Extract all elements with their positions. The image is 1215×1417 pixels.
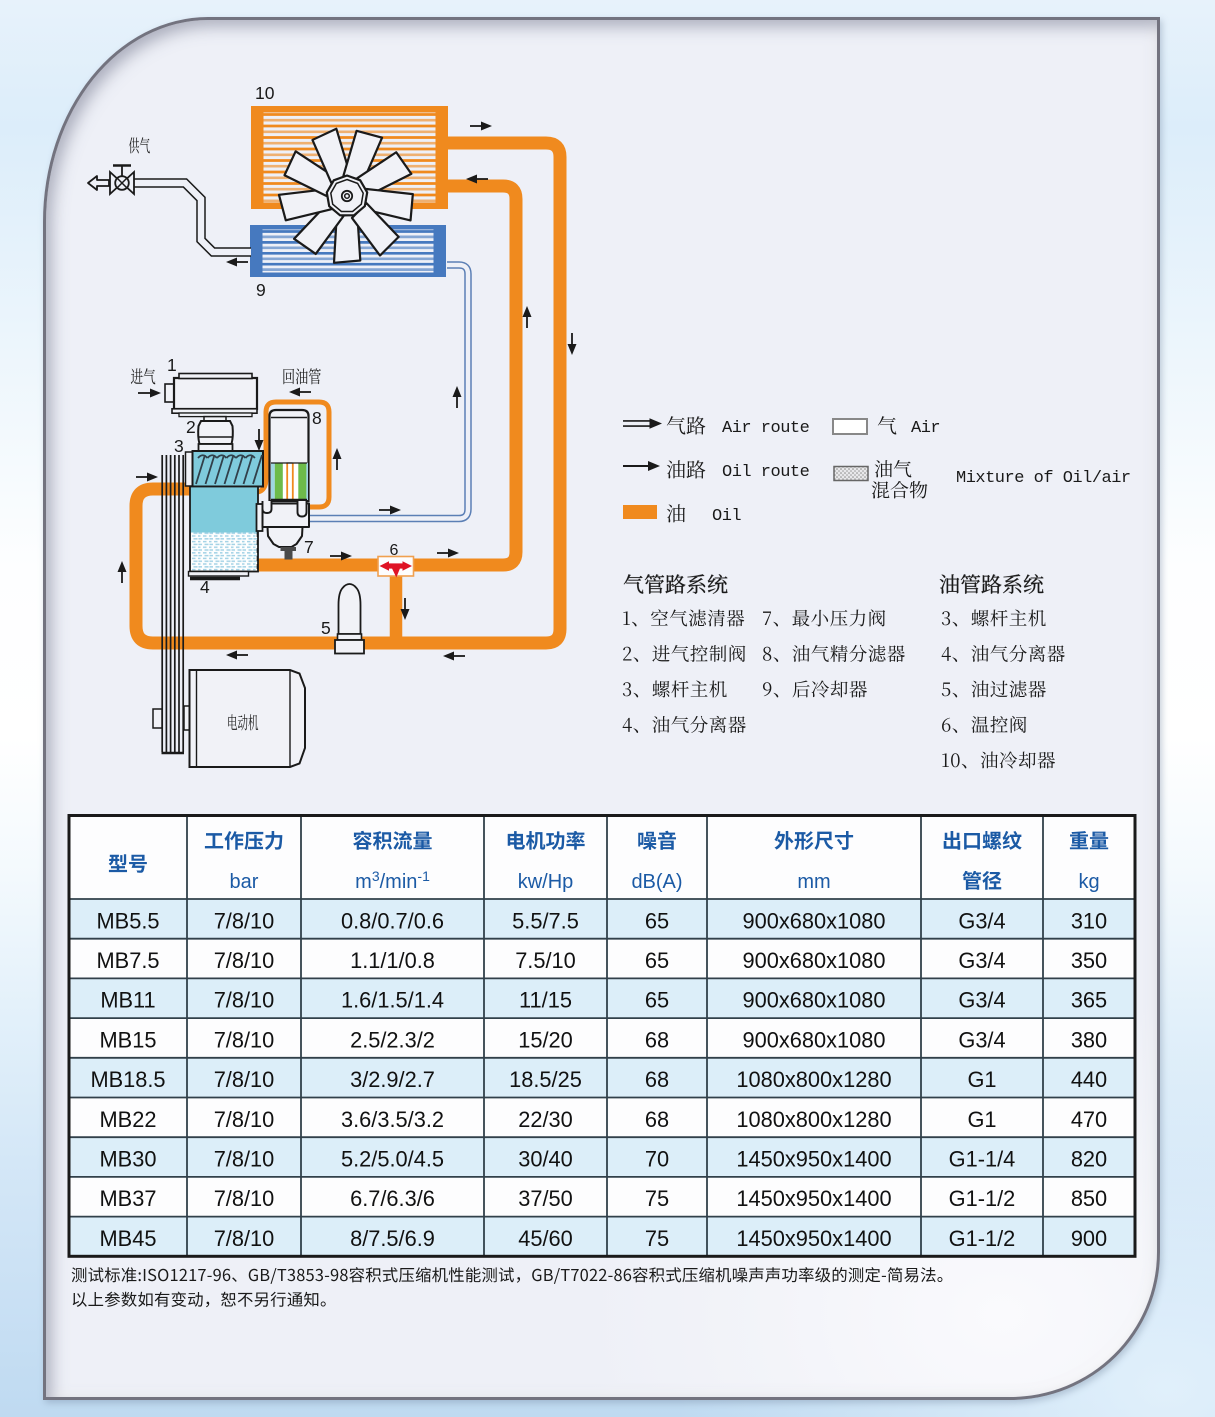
svg-text:4: 4	[200, 577, 210, 597]
svg-text:Air route: Air route	[722, 419, 810, 438]
svg-text:22/30: 22/30	[518, 1107, 573, 1132]
svg-text:G1-1/4: G1-1/4	[949, 1147, 1016, 1172]
svg-text:900x680x1080: 900x680x1080	[742, 948, 885, 973]
svg-text:Oil: Oil	[712, 507, 741, 526]
svg-text:900x680x1080: 900x680x1080	[742, 1027, 885, 1052]
svg-text:310: 310	[1071, 908, 1107, 933]
svg-text:bar: bar	[230, 871, 259, 893]
svg-text:10: 10	[255, 83, 275, 103]
svg-text:7/8/10: 7/8/10	[214, 1186, 275, 1211]
svg-text:8: 8	[312, 408, 322, 428]
svg-text:1.6/1.5/1.4: 1.6/1.5/1.4	[341, 988, 444, 1013]
svg-text:75: 75	[645, 1186, 669, 1211]
svg-text:1080x800x1280: 1080x800x1280	[736, 1107, 891, 1132]
svg-text:7/8/10: 7/8/10	[214, 1027, 275, 1052]
svg-text:820: 820	[1071, 1147, 1107, 1172]
svg-text:Mixture of Oil/air: Mixture of Oil/air	[956, 469, 1131, 488]
svg-text:G3/4: G3/4	[958, 948, 1005, 973]
svg-text:MB30: MB30	[100, 1147, 157, 1172]
svg-text:850: 850	[1071, 1186, 1107, 1211]
svg-text:1: 1	[167, 355, 177, 375]
svg-text:MB37: MB37	[100, 1186, 157, 1211]
svg-text:11/15: 11/15	[519, 988, 572, 1013]
svg-text:30/40: 30/40	[518, 1147, 573, 1172]
svg-text:18.5/25: 18.5/25	[509, 1067, 582, 1092]
svg-text:1.1/1/0.8: 1.1/1/0.8	[350, 948, 435, 973]
svg-text:8/7.5/6.9: 8/7.5/6.9	[350, 1226, 435, 1251]
svg-text:Air: Air	[911, 419, 940, 438]
svg-text:7/8/10: 7/8/10	[214, 948, 275, 973]
svg-text:75: 75	[645, 1226, 669, 1251]
svg-text:900: 900	[1071, 1226, 1107, 1251]
svg-text:900x680x1080: 900x680x1080	[742, 988, 885, 1013]
svg-text:Oil route: Oil route	[722, 463, 810, 482]
svg-text:3.6/3.5/3.2: 3.6/3.5/3.2	[341, 1107, 444, 1132]
svg-text:7/8/10: 7/8/10	[214, 1147, 275, 1172]
svg-text:1450x950x1400: 1450x950x1400	[736, 1147, 891, 1172]
svg-text:440: 440	[1071, 1067, 1107, 1092]
svg-text:G3/4: G3/4	[958, 1027, 1005, 1052]
svg-text:MB45: MB45	[100, 1226, 157, 1251]
svg-text:68: 68	[645, 1107, 669, 1132]
svg-text:380: 380	[1071, 1027, 1107, 1052]
svg-text:MB18.5: MB18.5	[90, 1067, 165, 1092]
svg-text:7: 7	[304, 537, 314, 557]
svg-text:70: 70	[645, 1147, 669, 1172]
svg-text:45/60: 45/60	[518, 1226, 573, 1251]
svg-text:G1-1/2: G1-1/2	[949, 1186, 1016, 1211]
svg-text:2.5/2.3/2: 2.5/2.3/2	[350, 1027, 435, 1052]
svg-text:kg: kg	[1078, 871, 1099, 893]
svg-text:1450x950x1400: 1450x950x1400	[736, 1186, 891, 1211]
svg-text:G1-1/2: G1-1/2	[949, 1226, 1016, 1251]
svg-text:MB11: MB11	[100, 988, 155, 1013]
svg-text:7/8/10: 7/8/10	[214, 1226, 275, 1251]
svg-text:mm: mm	[797, 871, 830, 893]
svg-text:7/8/10: 7/8/10	[214, 1067, 275, 1092]
svg-text:7/8/10: 7/8/10	[214, 1107, 275, 1132]
svg-text:9: 9	[256, 280, 266, 300]
svg-text:MB7.5: MB7.5	[97, 948, 160, 973]
svg-text:65: 65	[645, 908, 669, 933]
svg-text:7/8/10: 7/8/10	[214, 988, 275, 1013]
svg-text:MB22: MB22	[100, 1107, 157, 1132]
svg-text:5: 5	[321, 618, 331, 638]
svg-text:68: 68	[645, 1067, 669, 1092]
svg-text:68: 68	[645, 1027, 669, 1052]
svg-text:5.2/5.0/4.5: 5.2/5.0/4.5	[341, 1147, 444, 1172]
svg-text:65: 65	[645, 948, 669, 973]
svg-text:2: 2	[186, 417, 196, 437]
svg-text:7/8/10: 7/8/10	[214, 908, 275, 933]
svg-text:G3/4: G3/4	[958, 988, 1005, 1013]
svg-text:MB15: MB15	[100, 1027, 157, 1052]
svg-text:kw/Hp: kw/Hp	[518, 871, 574, 893]
svg-text:MB5.5: MB5.5	[97, 908, 160, 933]
svg-text:5.5/7.5: 5.5/7.5	[512, 908, 579, 933]
svg-text:37/50: 37/50	[518, 1186, 573, 1211]
svg-text:G3/4: G3/4	[958, 908, 1005, 933]
svg-text:65: 65	[645, 988, 669, 1013]
svg-text:6.7/6.3/6: 6.7/6.3/6	[350, 1186, 435, 1211]
svg-text:470: 470	[1071, 1107, 1107, 1132]
svg-text:1450x950x1400: 1450x950x1400	[736, 1226, 891, 1251]
svg-text:350: 350	[1071, 948, 1107, 973]
svg-text:dB(A): dB(A)	[631, 871, 682, 893]
svg-text:6: 6	[390, 542, 399, 559]
svg-text:900x680x1080: 900x680x1080	[742, 908, 885, 933]
svg-text:365: 365	[1071, 988, 1107, 1013]
svg-text:1080x800x1280: 1080x800x1280	[736, 1067, 891, 1092]
svg-text:G1: G1	[967, 1067, 996, 1092]
svg-text:3/2.9/2.7: 3/2.9/2.7	[350, 1067, 435, 1092]
svg-text:7.5/10: 7.5/10	[515, 948, 576, 973]
svg-text:G1: G1	[967, 1107, 996, 1132]
svg-text:3: 3	[174, 436, 184, 456]
svg-text:0.8/0.7/0.6: 0.8/0.7/0.6	[341, 908, 444, 933]
svg-text:15/20: 15/20	[518, 1027, 573, 1052]
